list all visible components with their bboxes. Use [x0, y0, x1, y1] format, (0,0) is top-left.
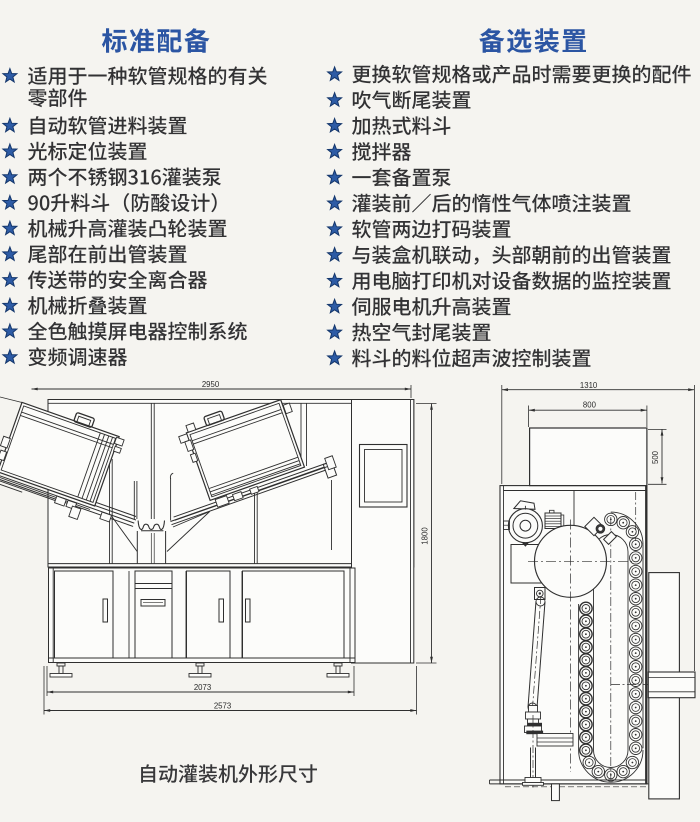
svg-text:1800: 1800	[420, 527, 429, 545]
svg-text:2073: 2073	[194, 683, 211, 692]
svg-text:2573: 2573	[214, 702, 231, 711]
svg-text:500: 500	[651, 450, 660, 464]
svg-text:2950: 2950	[202, 380, 220, 389]
svg-text:1310: 1310	[580, 381, 598, 390]
svg-text:800: 800	[583, 400, 597, 409]
